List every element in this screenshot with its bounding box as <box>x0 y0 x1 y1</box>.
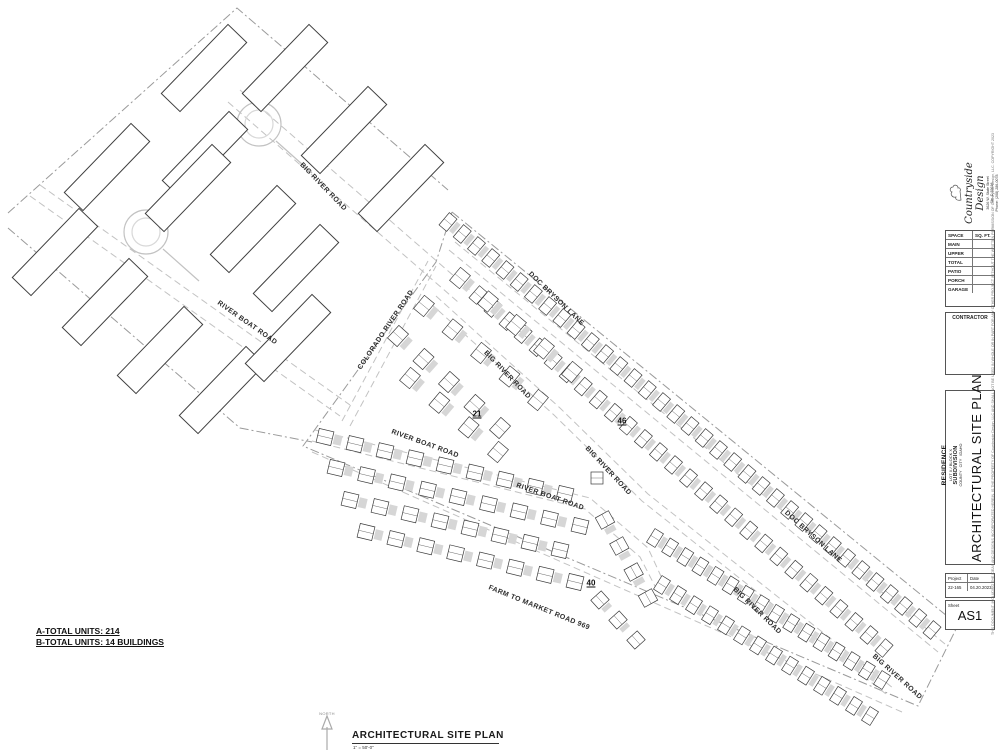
project-date-values: 22-165 04.20.2023 <box>946 583 994 591</box>
sheet-number: AS1 <box>946 608 994 623</box>
townhouse-unit <box>387 531 414 550</box>
contractor-label: CONTRACTOR <box>946 313 994 321</box>
townhouse-unit <box>449 488 476 507</box>
townhouse-unit <box>679 469 702 492</box>
townhouse-unit <box>627 631 645 649</box>
apartment-building <box>245 294 330 381</box>
townhouse-unit <box>358 467 385 486</box>
apartment-building <box>242 24 327 111</box>
townhouse-unit <box>571 517 589 534</box>
townhouse-unit <box>566 573 584 590</box>
townhouse-unit <box>770 547 793 570</box>
project-number: 22-165 <box>946 583 968 591</box>
townhouse-unit <box>695 482 718 505</box>
townhouse-unit <box>574 377 597 400</box>
townhouse-unit <box>429 392 456 418</box>
townhouse-unit <box>388 474 415 493</box>
townhouse-unit <box>417 538 444 557</box>
townhouse-unit <box>589 390 612 413</box>
project-label: Project <box>946 574 968 582</box>
townhouse-unit <box>710 495 733 518</box>
townhouse-unit <box>341 491 368 510</box>
townhouse-unit <box>357 523 384 542</box>
space-table-header: SPACE SQ. FT. <box>946 231 994 240</box>
north-arrow-icon <box>322 716 332 750</box>
apartment-building <box>62 258 147 345</box>
logo-company-name: Countryside Design <box>964 154 986 232</box>
unit-totals-note: A-TOTAL UNITS: 214 B-TOTAL UNITS: 14 BUI… <box>36 626 164 648</box>
townhouse-unit <box>755 534 778 557</box>
townhouse-unit <box>595 511 618 536</box>
townhouse-unit <box>371 499 398 518</box>
table-row: TOTAL <box>946 258 994 267</box>
townhouse-unit <box>413 348 440 374</box>
townhouse-unit <box>442 319 469 345</box>
view-title: ARCHITECTURAL SITE PLAN <box>352 730 504 741</box>
sheet-title-vertical: ARCHITECTURAL SITE PLAN <box>969 392 985 562</box>
table-row: GARAGE <box>946 285 994 293</box>
townhouse-unit <box>458 417 485 443</box>
sheet-number-box: Sheet AS1 <box>945 600 995 630</box>
townhouse-unit <box>785 560 808 583</box>
copyright-notice: THIS DOCUMENT, INCLUDING THE IDEAS AND D… <box>991 145 997 635</box>
townhouse-unit <box>521 534 548 553</box>
townhouse-unit <box>316 428 343 447</box>
townhouse-unit <box>634 429 657 452</box>
townhouse-rows <box>316 213 941 726</box>
total-units-a: A-TOTAL UNITS: 214 <box>36 626 164 637</box>
townhouse-unit <box>376 443 403 462</box>
townhouse-unit <box>526 478 553 497</box>
apartment-building <box>301 86 386 173</box>
row-label: TOTAL <box>946 258 973 266</box>
row-label: UPPER <box>946 249 973 257</box>
table-row: MAIN <box>946 240 994 249</box>
townhouse-unit <box>815 586 838 609</box>
apartment-building <box>64 123 149 210</box>
townhouse-unit <box>480 496 507 515</box>
contractor-box: CONTRACTOR <box>945 312 995 375</box>
townhouse-unit <box>471 342 498 368</box>
townhouse-unit <box>346 436 373 455</box>
row-label: MAIN <box>946 240 973 248</box>
total-units-b: B-TOTAL UNITS: 14 BUILDINGS <box>36 637 164 648</box>
company-logo: Countryside Design 3626 W. State Street … <box>946 154 994 232</box>
apartment-building <box>358 144 443 231</box>
townhouse-unit <box>431 513 458 532</box>
architectural-sheet: BIG RIVER ROADRIVER BOAT ROADCOLORADO RI… <box>0 0 1000 752</box>
townhouse-unit <box>466 464 493 483</box>
apartment-building <box>12 208 97 295</box>
townhouse-unit <box>477 552 504 571</box>
table-row: PORCH <box>946 276 994 285</box>
townhouse-unit <box>619 416 642 439</box>
logo-tree-icon <box>948 183 962 203</box>
table-row: PATIO <box>946 267 994 276</box>
townhouse-unit <box>464 394 491 420</box>
townhouse-unit <box>638 589 657 608</box>
townhouse-unit <box>609 611 632 634</box>
townhouse-unit <box>860 626 883 649</box>
project-description: RESIDENCE LOT X / BLOCK X SUBDIVISION CO… <box>941 390 971 540</box>
townhouse-unit <box>604 403 627 426</box>
townhouse-unit <box>489 417 510 438</box>
space-header-cell: SPACE <box>946 231 973 239</box>
townhouse-unit <box>499 366 526 392</box>
townhouse-unit <box>830 599 853 622</box>
row-label: GARAGE <box>946 285 973 293</box>
north-label: NORTH <box>319 711 335 716</box>
apartment-building <box>253 224 338 311</box>
residence-label: RESIDENCE <box>941 390 948 540</box>
project-date-box: Project Date 22-165 04.20.2023 <box>945 573 995 598</box>
townhouse-unit <box>551 541 569 558</box>
townhouse-unit <box>664 456 687 479</box>
townhouse-unit <box>510 503 537 522</box>
view-title-underline <box>352 743 499 744</box>
townhouse-unit <box>591 472 603 484</box>
table-row: UPPER <box>946 249 994 258</box>
townhouse-unit <box>438 371 465 397</box>
townhouse-unit <box>800 573 823 596</box>
townhouse-unit <box>556 485 574 502</box>
space-table: SPACE SQ. FT. MAIN UPPER TOTAL PATIO POR… <box>945 230 995 307</box>
townhouse-unit <box>610 537 633 562</box>
townhouse-unit <box>450 267 477 293</box>
townhouse-unit <box>740 521 763 544</box>
townhouse-unit <box>400 367 427 393</box>
townhouse-unit <box>591 591 614 614</box>
townhouse-unit <box>447 545 474 564</box>
view-scale: 1" = 50'-0" <box>353 745 374 750</box>
townhouse-unit <box>536 566 563 585</box>
apartment-building <box>117 306 202 393</box>
townhouse-unit <box>419 481 446 500</box>
townhouse-unit <box>327 459 354 478</box>
county-city-state-label: COUNTY CITY IDAHO <box>959 390 963 540</box>
townhouse-unit <box>624 563 647 588</box>
townhouse-unit <box>488 441 509 462</box>
townhouse-unit <box>506 559 533 578</box>
project-date-header: Project Date <box>946 574 994 583</box>
townhouse-unit <box>845 613 868 636</box>
apartment-building <box>210 185 295 272</box>
townhouse-unit <box>406 450 433 469</box>
townhouse-unit <box>541 510 568 529</box>
row-label: PATIO <box>946 267 973 275</box>
townhouse-unit <box>491 527 518 546</box>
townhouse-unit <box>649 443 672 466</box>
townhouse-unit <box>725 508 748 531</box>
townhouse-unit <box>401 506 428 525</box>
row-label: PORCH <box>946 276 973 284</box>
